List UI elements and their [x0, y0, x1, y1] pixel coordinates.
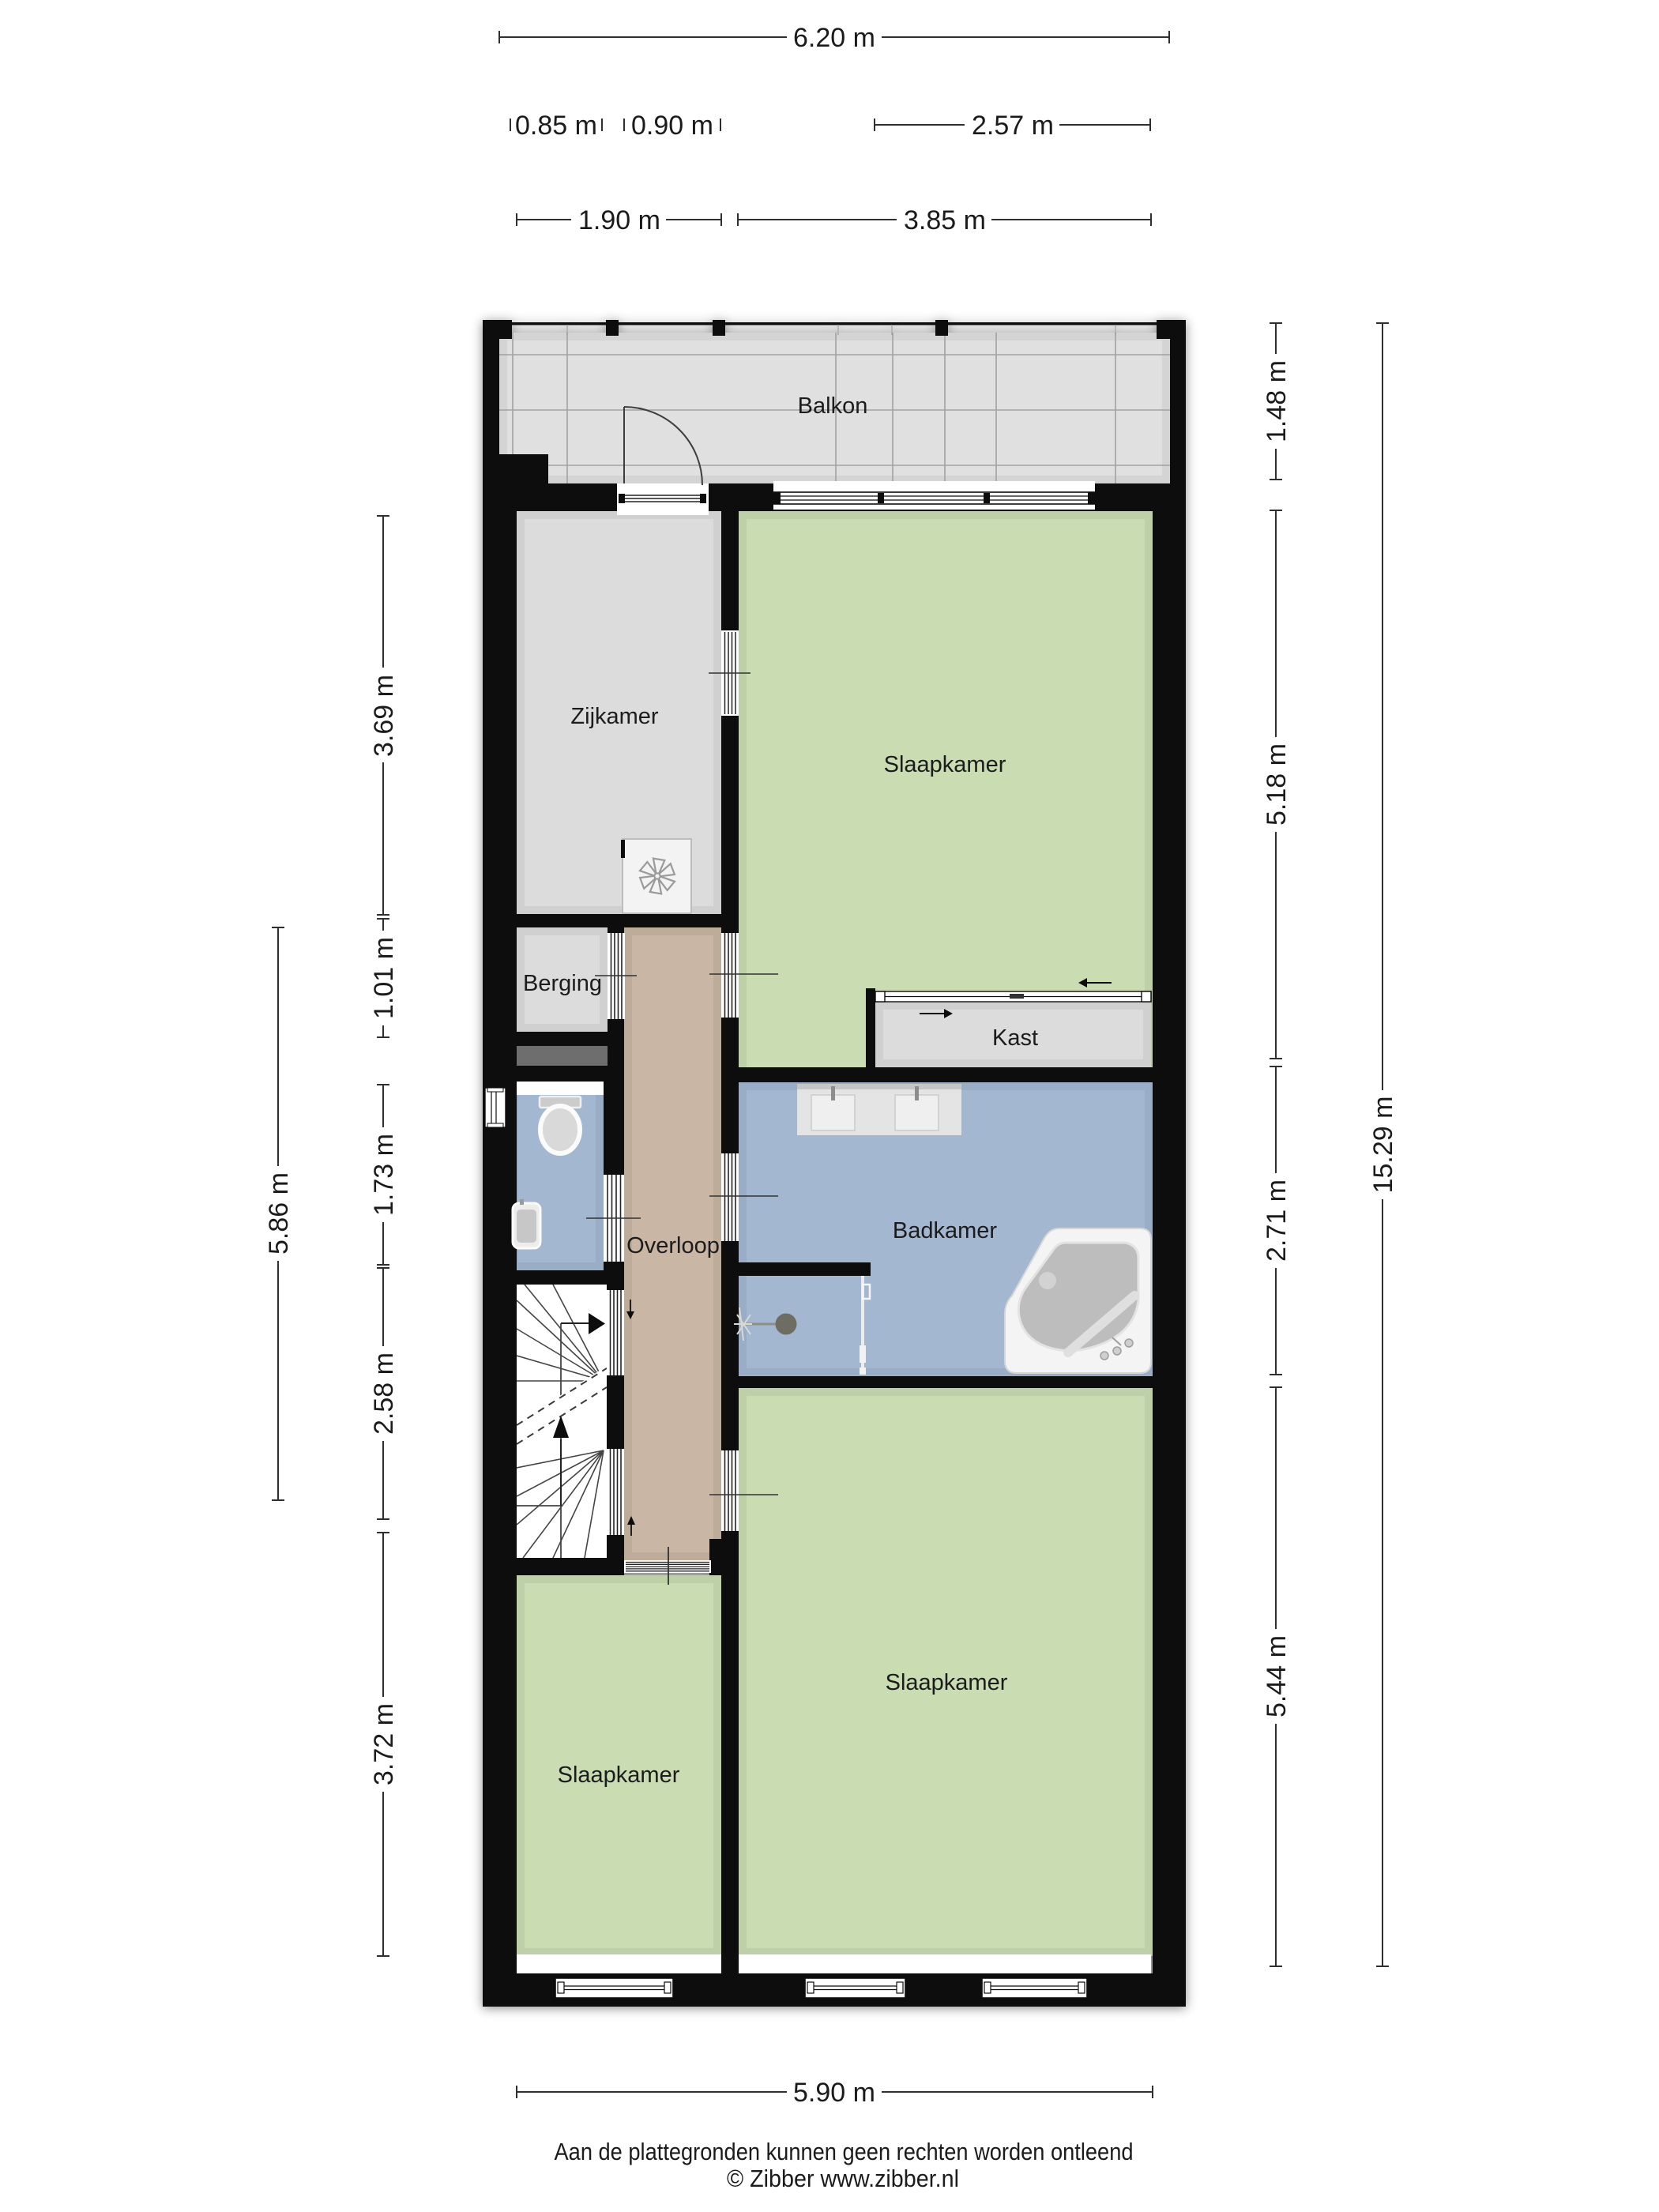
svg-text:0.90 m: 0.90 m	[631, 111, 713, 141]
svg-text:5.44 m: 5.44 m	[1262, 1635, 1292, 1717]
svg-text:Slaapkamer: Slaapkamer	[558, 1762, 680, 1788]
svg-text:15.29 m: 15.29 m	[1368, 1097, 1398, 1194]
svg-text:5.90 m: 5.90 m	[793, 2078, 875, 2108]
svg-text:5.18 m: 5.18 m	[1262, 743, 1292, 826]
svg-text:Aan de plattegronden kunnen ge: Aan de plattegronden kunnen geen rechten…	[555, 2138, 1134, 2165]
svg-text:1.01 m: 1.01 m	[369, 937, 399, 1019]
svg-text:Balkon: Balkon	[798, 393, 868, 419]
svg-text:6.20 m: 6.20 m	[793, 23, 875, 53]
svg-text:Berging: Berging	[523, 971, 602, 996]
svg-text:3.85 m: 3.85 m	[904, 205, 986, 235]
svg-text:3.72 m: 3.72 m	[369, 1703, 399, 1785]
svg-text:2.58 m: 2.58 m	[369, 1352, 399, 1435]
svg-text:Slaapkamer: Slaapkamer	[886, 1670, 1008, 1695]
svg-text:1.73 m: 1.73 m	[369, 1134, 399, 1216]
svg-text:1.90 m: 1.90 m	[578, 205, 660, 235]
svg-text:0.85 m: 0.85 m	[515, 111, 597, 141]
svg-text:Kast: Kast	[992, 1025, 1038, 1051]
svg-text:Badkamer: Badkamer	[893, 1218, 998, 1243]
svg-text:Overloop: Overloop	[626, 1233, 720, 1258]
svg-text:1.48 m: 1.48 m	[1262, 360, 1292, 442]
svg-text:2.57 m: 2.57 m	[972, 111, 1054, 141]
svg-text:2.71 m: 2.71 m	[1262, 1179, 1292, 1262]
svg-text:© Zibber www.zibber.nl: © Zibber www.zibber.nl	[727, 2165, 959, 2192]
svg-text:5.86 m: 5.86 m	[264, 1172, 294, 1255]
svg-text:3.69 m: 3.69 m	[369, 675, 399, 757]
svg-text:Zijkamer: Zijkamer	[570, 704, 659, 729]
svg-text:Slaapkamer: Slaapkamer	[884, 752, 1006, 777]
